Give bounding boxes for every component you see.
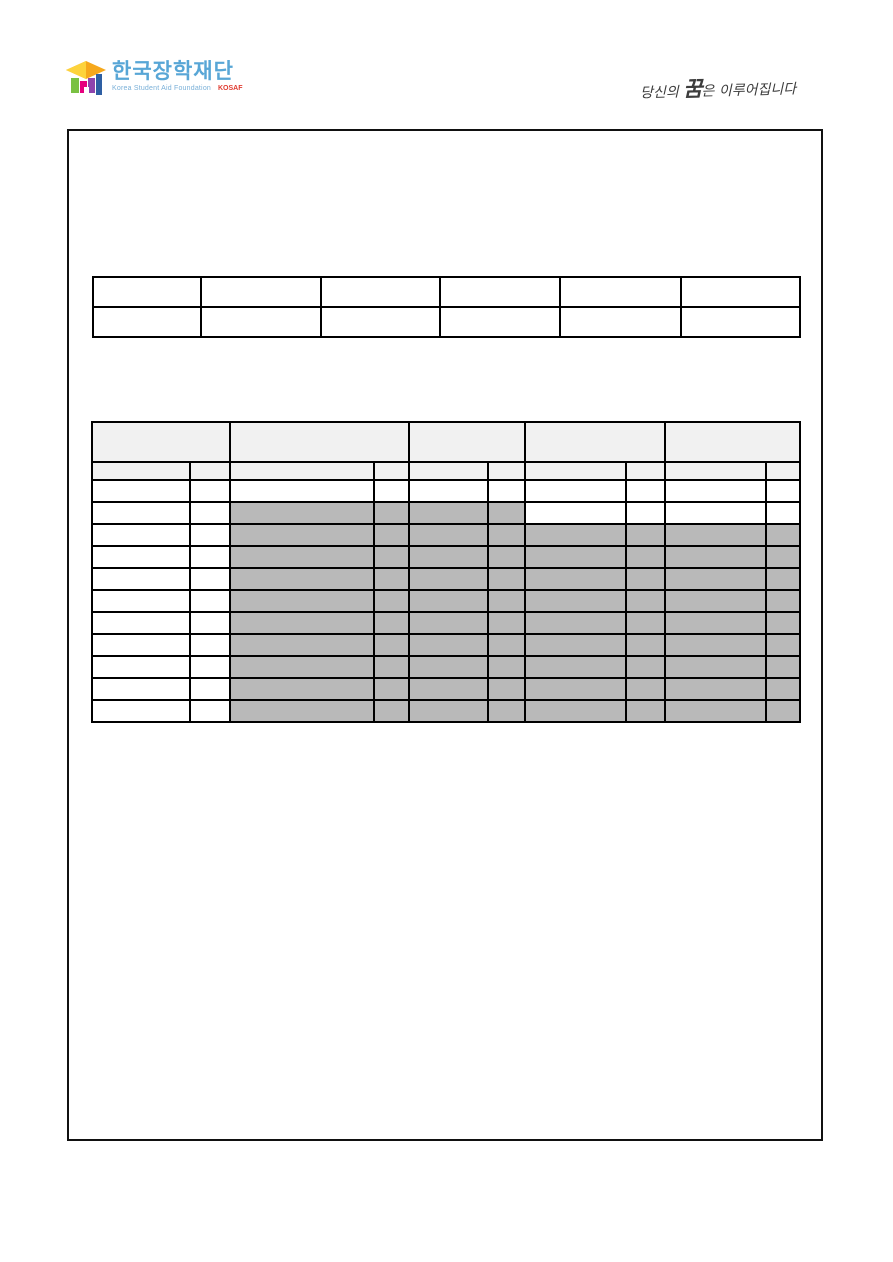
- lower-table-cell: [525, 524, 626, 546]
- lower-table-cell-narrow: [766, 678, 800, 700]
- lower-table-subheader-cell-narrow: [626, 462, 665, 480]
- lower-table-cell: [92, 656, 190, 678]
- lower-table-data-row: [92, 480, 800, 502]
- lower-table-cell-narrow: [766, 568, 800, 590]
- lower-table-head: [92, 422, 800, 480]
- upper-table-row: [93, 277, 800, 307]
- lower-table-cell-narrow: [488, 590, 525, 612]
- lower-table-cell-narrow: [488, 568, 525, 590]
- lower-table-cell-narrow: [190, 656, 230, 678]
- lower-table-cell-narrow: [374, 612, 409, 634]
- lower-table-data-row: [92, 678, 800, 700]
- lower-table-subheader-cell: [665, 462, 766, 480]
- lower-table-cell: [665, 568, 766, 590]
- lower-table-cell-narrow: [766, 524, 800, 546]
- lower-table-cell: [409, 678, 488, 700]
- lower-table-cell: [409, 612, 488, 634]
- logo-text-block: 한국장학재단 Korea Student Aid Foundation KOSA…: [112, 57, 242, 92]
- lower-table-cell: [525, 590, 626, 612]
- handwritten-slogan: 당신의 꿈은 이루어집니다: [640, 70, 826, 105]
- lower-table-cell-narrow: [766, 480, 800, 502]
- lower-table-data-row: [92, 568, 800, 590]
- lower-table-cell-narrow: [626, 480, 665, 502]
- lower-table-cell: [665, 700, 766, 722]
- lower-table-data-row: [92, 590, 800, 612]
- lower-table-cell: [230, 612, 374, 634]
- lower-table-body: [92, 480, 800, 722]
- lower-table-cell: [409, 590, 488, 612]
- lower-table-cell-narrow: [190, 700, 230, 722]
- lower-table-cell: [92, 590, 190, 612]
- lower-table-data-row: [92, 656, 800, 678]
- lower-table-cell-narrow: [488, 524, 525, 546]
- lower-table-cell-narrow: [766, 546, 800, 568]
- upper-table-cell: [93, 307, 201, 337]
- lower-table-cell: [665, 502, 766, 524]
- lower-table-cell-narrow: [488, 700, 525, 722]
- lower-table-cell: [230, 524, 374, 546]
- lower-table-cell-narrow: [626, 612, 665, 634]
- lower-table-cell-narrow: [626, 502, 665, 524]
- lower-table-data-row: [92, 634, 800, 656]
- lower-table-cell-narrow: [374, 634, 409, 656]
- lower-table-cell-narrow: [488, 612, 525, 634]
- lower-table-subheader-cell: [409, 462, 488, 480]
- lower-table-cell-narrow: [488, 546, 525, 568]
- lower-table-cell-narrow: [626, 568, 665, 590]
- logo-korean-name: 한국장학재단: [112, 61, 242, 82]
- lower-table-group-header: [409, 422, 525, 462]
- upper-table-cell: [201, 307, 320, 337]
- lower-table-cell-narrow: [190, 480, 230, 502]
- lower-table-cell-narrow: [766, 656, 800, 678]
- lower-table-group-header: [665, 422, 800, 462]
- lower-table-cell: [230, 480, 374, 502]
- upper-table-cell: [440, 277, 559, 307]
- lower-table-cell-narrow: [626, 590, 665, 612]
- upper-table-body: [93, 277, 800, 337]
- lower-table-cell: [525, 678, 626, 700]
- lower-table-cell-narrow: [626, 700, 665, 722]
- kosaf-logo: 한국장학재단 Korea Student Aid Foundation KOSA…: [64, 57, 242, 99]
- upper-table-cell: [560, 307, 682, 337]
- lower-table-cell-narrow: [766, 590, 800, 612]
- lower-table-cell: [92, 524, 190, 546]
- lower-table-group-header: [525, 422, 664, 462]
- lower-table-cell-narrow: [190, 568, 230, 590]
- lower-table-cell: [409, 656, 488, 678]
- lower-table-cell: [665, 480, 766, 502]
- lower-table-cell: [409, 480, 488, 502]
- lower-table-cell-narrow: [488, 480, 525, 502]
- lower-table-cell-narrow: [190, 502, 230, 524]
- lower-table-cell: [230, 634, 374, 656]
- lower-table-cell-narrow: [374, 524, 409, 546]
- lower-table-cell: [92, 612, 190, 634]
- lower-table-cell: [409, 568, 488, 590]
- lower-table-cell: [665, 590, 766, 612]
- logo-subtext-line: Korea Student Aid Foundation KOSAF: [112, 85, 242, 92]
- lower-table-cell: [525, 634, 626, 656]
- lower-table-cell-narrow: [190, 634, 230, 656]
- lower-table-cell: [665, 678, 766, 700]
- lower-table-cell: [525, 700, 626, 722]
- graduation-cap-icon: [64, 57, 108, 99]
- lower-table-cell-narrow: [374, 502, 409, 524]
- lower-table-cell-narrow: [190, 546, 230, 568]
- lower-table-cell: [409, 502, 488, 524]
- lower-table-subheader-cell-narrow: [766, 462, 800, 480]
- lower-table-cell-narrow: [374, 656, 409, 678]
- lower-table-subheader-row: [92, 462, 800, 480]
- lower-table-cell-narrow: [374, 678, 409, 700]
- lower-table-cell: [665, 656, 766, 678]
- lower-table-group-header-row: [92, 422, 800, 462]
- lower-table-cell-narrow: [766, 700, 800, 722]
- lower-table-cell: [525, 568, 626, 590]
- lower-table-data-row: [92, 612, 800, 634]
- lower-table-data-row: [92, 700, 800, 722]
- lower-table-cell: [409, 546, 488, 568]
- lower-table-cell: [230, 700, 374, 722]
- lower-table-cell: [409, 524, 488, 546]
- lower-table-cell: [92, 678, 190, 700]
- lower-table-group-header: [92, 422, 230, 462]
- lower-table-cell-narrow: [190, 524, 230, 546]
- lower-table-cell: [230, 656, 374, 678]
- content-box: [67, 129, 823, 1141]
- upper-table-cell: [560, 277, 682, 307]
- lower-table-cell: [665, 612, 766, 634]
- lower-table-cell: [525, 502, 626, 524]
- lower-table-cell: [230, 568, 374, 590]
- lower-table-data-row: [92, 502, 800, 524]
- lower-table-cell-narrow: [190, 678, 230, 700]
- lower-table-cell: [230, 546, 374, 568]
- lower-table-group-header: [230, 422, 409, 462]
- upper-table-cell: [681, 277, 800, 307]
- lower-table-cell-narrow: [488, 502, 525, 524]
- lower-table-subheader-cell: [525, 462, 626, 480]
- lower-table-cell-narrow: [766, 634, 800, 656]
- lower-table-cell: [409, 634, 488, 656]
- slogan-suffix: 은 이루어집니다: [701, 81, 796, 99]
- lower-table-cell-narrow: [626, 634, 665, 656]
- lower-table-cell-narrow: [488, 634, 525, 656]
- lower-table-cell: [525, 480, 626, 502]
- lower-table-cell-narrow: [374, 700, 409, 722]
- lower-table-cell: [92, 568, 190, 590]
- lower-table-cell-narrow: [374, 546, 409, 568]
- lower-table-cell: [92, 634, 190, 656]
- upper-table-cell: [201, 277, 320, 307]
- lower-table-cell-narrow: [374, 590, 409, 612]
- lower-table-cell-narrow: [626, 656, 665, 678]
- lower-table-subheader-cell: [92, 462, 190, 480]
- logo-acronym: KOSAF: [218, 85, 243, 92]
- lower-table-cell: [230, 678, 374, 700]
- lower-table-cell-narrow: [626, 524, 665, 546]
- lower-table-cell: [409, 700, 488, 722]
- upper-table-cell: [681, 307, 800, 337]
- lower-table-cell-narrow: [374, 480, 409, 502]
- lower-table-data-row: [92, 546, 800, 568]
- lower-table-subheader-cell-narrow: [488, 462, 525, 480]
- upper-table-cell: [440, 307, 559, 337]
- lower-table-cell-narrow: [190, 612, 230, 634]
- lower-table-cell: [92, 700, 190, 722]
- lower-table-cell-narrow: [374, 568, 409, 590]
- lower-table-cell: [230, 590, 374, 612]
- lower-table-cell: [230, 502, 374, 524]
- lower-table-cell: [525, 546, 626, 568]
- lower-table-cell: [92, 480, 190, 502]
- lower-table-data-row: [92, 524, 800, 546]
- lower-table-cell: [92, 546, 190, 568]
- lower-table: [91, 421, 801, 723]
- slogan-emphasis: 꿈: [683, 76, 702, 101]
- lower-table-cell: [665, 634, 766, 656]
- lower-table-cell-narrow: [766, 502, 800, 524]
- lower-table-cell: [665, 546, 766, 568]
- upper-table-cell: [93, 277, 201, 307]
- lower-table-cell-narrow: [626, 546, 665, 568]
- upper-table: [92, 276, 801, 338]
- lower-table-cell-narrow: [626, 678, 665, 700]
- slogan-prefix: 당신의: [640, 84, 683, 101]
- lower-table-cell-narrow: [488, 656, 525, 678]
- lower-table-subheader-cell-narrow: [190, 462, 230, 480]
- document-page: { "header": { "logo": { "korean_name": "…: [0, 0, 893, 1262]
- upper-table-cell: [321, 277, 440, 307]
- lower-table-cell: [665, 524, 766, 546]
- lower-table-subheader-cell: [230, 462, 374, 480]
- upper-table-row: [93, 307, 800, 337]
- upper-table-cell: [321, 307, 440, 337]
- lower-table-cell-narrow: [766, 612, 800, 634]
- lower-table-subheader-cell-narrow: [374, 462, 409, 480]
- lower-table-cell-narrow: [488, 678, 525, 700]
- lower-table-cell: [525, 612, 626, 634]
- lower-table-cell: [92, 502, 190, 524]
- logo-english-name: Korea Student Aid Foundation: [112, 85, 211, 92]
- lower-table-cell: [525, 656, 626, 678]
- lower-table-cell-narrow: [190, 590, 230, 612]
